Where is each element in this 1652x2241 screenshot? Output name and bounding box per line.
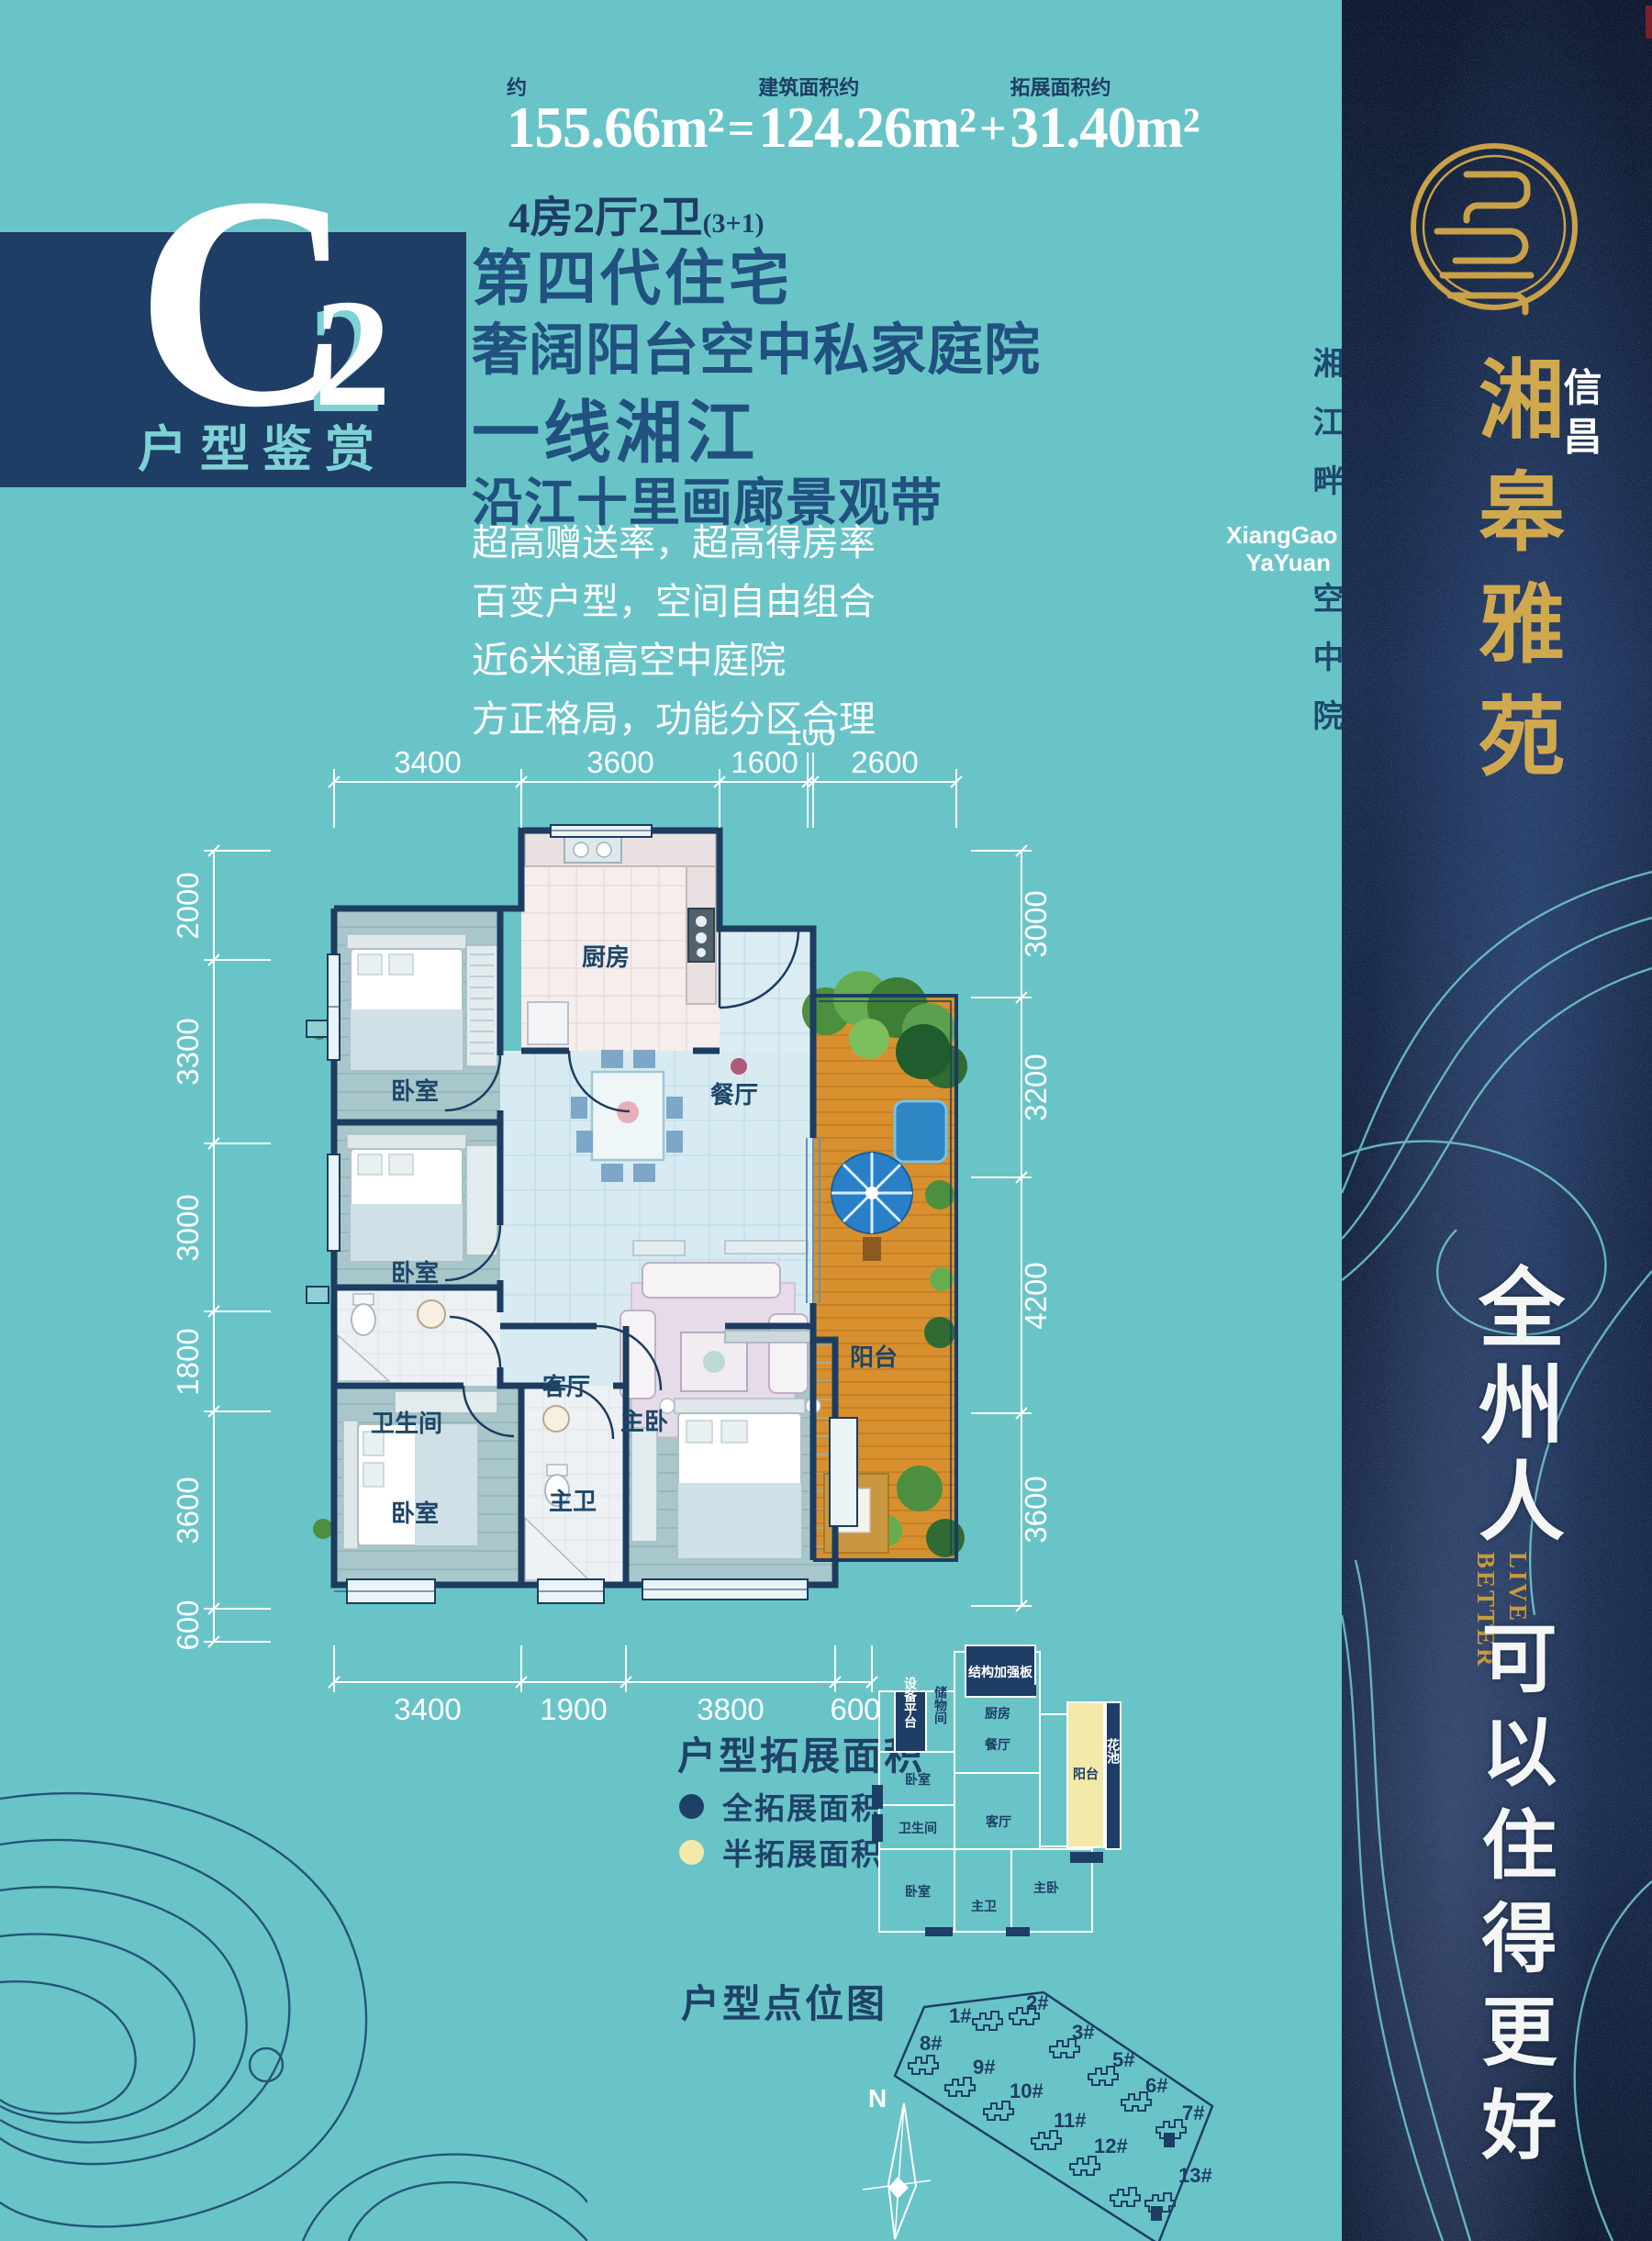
- dim-bottom-3: 3800: [697, 1692, 764, 1726]
- mini-flower-bed: 花池: [1106, 1737, 1121, 1765]
- total-area-value: 155.66m²: [507, 99, 724, 156]
- brand-english-line1: XiangGao: [1226, 521, 1331, 549]
- headline-2: 奢阔阳台空中私家庭院: [472, 304, 1041, 385]
- half-expansion-dot-icon: [679, 1840, 704, 1865]
- room-bedroom2: 卧室: [391, 1259, 439, 1287]
- building-label: 6#: [1145, 2074, 1167, 2097]
- room-balcony: 阳台: [850, 1343, 898, 1371]
- building-label: 1#: [949, 2004, 971, 2027]
- building-label: 13#: [1178, 2164, 1212, 2187]
- building-label: 10#: [1010, 2079, 1044, 2102]
- mini-storage: 储物间: [933, 1685, 948, 1725]
- room-bedroom3: 卧室: [391, 1500, 439, 1527]
- mini-living: 客厅: [985, 1814, 1011, 1829]
- unit-emblem: C 2 户型鉴赏: [0, 232, 466, 487]
- dim-top-1: 3400: [394, 745, 461, 779]
- building-13-marker: [1151, 2206, 1162, 2221]
- expand-area-group: 拓展面积约 31.40m²: [1010, 77, 1200, 156]
- floor-plan: 厨房 餐厅 卧室 卧室 客厅 阳台 卫生间 卧室 主卫 主卧: [174, 730, 1083, 1730]
- emblem-number: 2: [314, 276, 391, 430]
- site-buildings: [909, 2006, 1186, 2212]
- building-label: 12#: [1094, 2135, 1128, 2157]
- dim-top-4: 100: [785, 730, 835, 752]
- building-label: 7#: [1182, 2102, 1204, 2124]
- legend-full-label: 全拓展面积: [722, 1784, 883, 1828]
- room-dining: 餐厅: [710, 1081, 758, 1109]
- selling-point-1: 超高赠送率，超高得房率: [472, 514, 876, 573]
- room-master-bath: 主卫: [549, 1488, 597, 1515]
- dim-top-5: 2600: [851, 745, 918, 779]
- equals-sign: =: [728, 103, 755, 156]
- building-label: 2#: [1026, 1991, 1048, 2014]
- selling-point-3: 近6米通高空中庭院: [472, 631, 876, 690]
- room-living: 客厅: [542, 1373, 590, 1400]
- dim-bottom-2: 1900: [540, 1692, 607, 1726]
- brand-banner: 信昌 湘皋雅苑 全州人 LIVE BETTER 可以住得更好: [1342, 0, 1652, 2241]
- brand-english: XiangGao YaYuan: [1226, 521, 1331, 576]
- poster-page: 约 155.66m² = 建筑面积约 124.26m² + 拓展面积约 31.4…: [0, 0, 1652, 2241]
- compass-icon: N: [863, 2084, 931, 2239]
- site-plan: 1# 2# 3# 5# 6# 7# 8# 9# 10# 11# 12# 13# …: [826, 1964, 1230, 2241]
- building-label: 9#: [973, 2056, 995, 2079]
- selling-points: 超高赠送率，超高得房率 百变户型，空间自由组合 近6米通高空中庭院 方正格局，功…: [472, 514, 876, 749]
- contour-decoration: [0, 1744, 587, 2241]
- dim-left-1: 2000: [174, 872, 205, 939]
- slogan-cn-2: 可以住得更好: [1457, 1619, 1567, 2179]
- brand-name: 湘皋雅苑: [1451, 354, 1576, 803]
- dim-left-5: 3600: [174, 1477, 205, 1544]
- total-area-group: 约 155.66m²: [507, 77, 724, 156]
- dim-left-3: 3000: [174, 1194, 205, 1261]
- mini-bedroom1: 卧室: [905, 1772, 931, 1787]
- build-area-value: 124.26m²: [758, 99, 976, 156]
- compass-n-label: N: [868, 2084, 887, 2113]
- brand-english-line2: YaYuan: [1226, 549, 1331, 576]
- expansion-diagram: 结构加强板 设备平台 储物间 厨房 餐厅 卧室 卫生间 客厅 卧室 主卫 主卧 …: [870, 1633, 1136, 1941]
- building-label: 8#: [920, 2032, 942, 2055]
- building-label: 5#: [1112, 2048, 1134, 2071]
- mini-master-bath: 主卫: [971, 1899, 997, 1913]
- dim-bottom-1: 3400: [394, 1692, 461, 1726]
- dim-top-2: 3600: [586, 745, 653, 779]
- slogan-cn-1: 全州人: [1451, 1263, 1576, 1553]
- dim-right-4: 3600: [1019, 1476, 1053, 1543]
- dim-right-3: 4200: [1019, 1262, 1053, 1329]
- mini-bath: 卫生间: [899, 1821, 937, 1835]
- plus-sign: +: [979, 103, 1007, 156]
- dim-left-6: 600: [174, 1600, 205, 1650]
- mini-equipment: 设备平台: [903, 1677, 918, 1729]
- dim-left-4: 1800: [174, 1328, 205, 1395]
- room-kitchen: 厨房: [582, 943, 630, 971]
- dim-left-2: 3300: [174, 1018, 205, 1085]
- site-building-labels: 1# 2# 3# 5# 6# 7# 8# 9# 10# 11# 12# 13#: [920, 1991, 1212, 2187]
- expand-area-value: 31.40m²: [1010, 99, 1200, 156]
- legend-half-label: 半拓展面积: [722, 1830, 883, 1874]
- legend-half-row: 半拓展面积: [679, 1830, 883, 1874]
- legend-full-row: 全拓展面积: [679, 1784, 883, 1828]
- room-bedroom1: 卧室: [391, 1077, 439, 1105]
- mini-structure-board: 结构加强板: [968, 1665, 1033, 1679]
- build-area-group: 建筑面积约 124.26m²: [758, 77, 976, 156]
- mini-dining: 餐厅: [984, 1737, 1010, 1752]
- building-7-marker: [1164, 2133, 1175, 2147]
- mini-master-bedroom: 主卧: [1033, 1880, 1059, 1895]
- selling-point-2: 百变户型，空间自由组合: [472, 573, 876, 631]
- mini-bedroom2: 卧室: [905, 1884, 931, 1899]
- dim-right-1: 3000: [1019, 890, 1053, 957]
- emblem-caption: 户型鉴赏: [138, 408, 387, 481]
- dim-right-2: 3200: [1019, 1054, 1053, 1120]
- building-label: 3#: [1072, 2021, 1094, 2044]
- area-summary: 约 155.66m² = 建筑面积约 124.26m² + 拓展面积约 31.4…: [507, 77, 1200, 156]
- room-bath: 卫生间: [371, 1410, 442, 1437]
- mini-balcony: 阳台: [1073, 1767, 1099, 1781]
- room-master-bedroom: 主卧: [620, 1408, 668, 1435]
- corner-mark: [1646, 6, 1652, 39]
- full-expansion-dot-icon: [679, 1794, 704, 1819]
- mini-kitchen: 厨房: [985, 1706, 1010, 1721]
- building-label: 11#: [1054, 2109, 1087, 2132]
